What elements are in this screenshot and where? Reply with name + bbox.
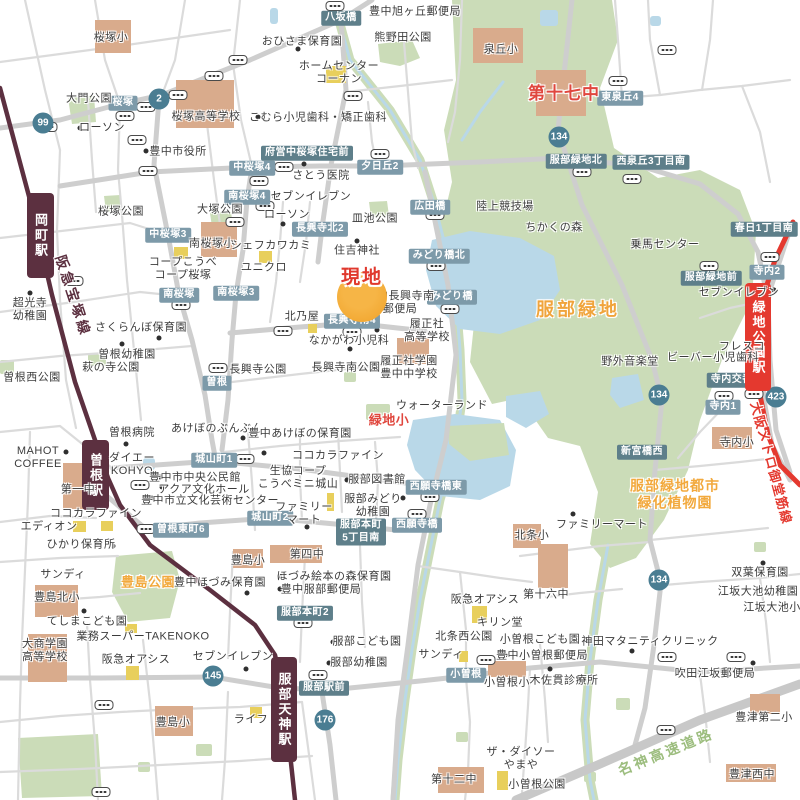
route-number-badge: 145: [203, 666, 224, 687]
map-label: 江坂大池幼稚園: [718, 586, 799, 599]
map-label: 北乃屋: [285, 311, 320, 324]
bus-stop-icon: [623, 174, 642, 184]
bus-stop-icon: [658, 45, 677, 55]
poi-dot: [302, 162, 307, 167]
intersection-badge: みどり橋: [427, 290, 477, 305]
poi-dot: [28, 291, 33, 296]
map-label: ホームセンター コーナン: [299, 60, 379, 86]
bus-stop-icon: [275, 162, 294, 172]
map-label: ココカラファイン: [292, 450, 384, 463]
poi-dot: [548, 667, 553, 672]
map-label: サンディ: [418, 649, 463, 662]
map-label: 服部こども園: [333, 636, 402, 649]
intersection-badge: 服部本町2: [277, 606, 333, 621]
intersection-badge: 中桜塚4: [229, 161, 275, 176]
intersection-badge: 長興寺北2: [292, 222, 348, 237]
map-label: エディオン: [21, 521, 78, 534]
route-number-badge: 134: [649, 385, 670, 406]
map-label: 豊中市役所: [149, 146, 207, 159]
map-label: 小曽根小: [484, 677, 530, 690]
bus-stop-icon: [209, 363, 228, 373]
route-number-badge: 176: [315, 710, 336, 731]
map-label: 履正社 高等学校: [404, 318, 450, 344]
map-label: 豊津西中: [729, 769, 775, 782]
map-label: シェフカワカミ: [231, 240, 312, 253]
map-label: 第十六中: [523, 589, 569, 602]
map-label: おひさま保育園: [262, 36, 343, 49]
map-label: 第十二中: [431, 774, 477, 787]
map-label: ライフ: [234, 714, 269, 727]
map-label: 泉丘小: [484, 44, 519, 57]
map-label: 木佐貫診療所: [530, 675, 599, 688]
map-label: ココカラファイン: [50, 508, 142, 521]
route-number-badge: 134: [649, 570, 670, 591]
site-marker-label: 現地: [341, 267, 383, 289]
bus-stop-icon: [477, 655, 496, 665]
poi-dot: [124, 442, 129, 447]
map-label: 服部みどり 幼稚園: [344, 493, 402, 519]
bus-stop-icon: [658, 652, 677, 662]
map-label: 陸上競技場: [476, 201, 534, 214]
map-label: 小曽根公園: [508, 779, 566, 792]
intersection-badge: 寺内1: [705, 400, 740, 415]
bus-stop-icon: [250, 176, 269, 186]
intersection-badge: 城山町1: [191, 453, 237, 468]
map-label: 桜塚公園: [98, 206, 144, 219]
map-label: 乗馬センター: [631, 239, 700, 252]
map-label: ひかり保育所: [47, 539, 116, 552]
map-label: ローソン: [79, 122, 125, 135]
bus-stop-icon: [205, 71, 224, 81]
hankyu-station-box: 岡町駅: [27, 193, 54, 278]
map-label: 生協コープ こうべミニ城山: [258, 465, 339, 491]
map-label: 神田マタニティクリニック: [581, 636, 718, 649]
poi-dot: [82, 609, 87, 614]
map-label: さとう医院: [292, 170, 350, 183]
map-label: 熊野田公園: [374, 32, 432, 45]
intersection-badge: 服部緑地前: [681, 271, 742, 286]
poi-dot: [761, 561, 766, 566]
intersection-badge: 西願寺橋東: [406, 480, 467, 495]
map-label: 豊中ほづみ保育園: [174, 577, 266, 590]
map-label: 豊島公園: [121, 574, 175, 589]
map-canvas[interactable]: 桜塚中桜塚4南桜塚4中桜塚3夕日丘2長興寺北2広田橋みどり橋北みどり橋長興寺南4…: [0, 0, 800, 800]
map-label: 豊中旭ヶ丘郵便局: [369, 6, 461, 19]
map-label: 服部図書館: [348, 474, 406, 487]
poi-dot: [64, 450, 69, 455]
map-label: 南桜塚小: [189, 238, 235, 251]
map-label: 大阪メトロ御堂筋線: [747, 400, 794, 526]
map-label: MAHOT COFFEE: [14, 445, 62, 471]
hankyu-station-box: 服部天神駅: [271, 657, 297, 762]
map-label: キリン堂: [477, 617, 523, 630]
map-label: 長興寺南公園: [312, 362, 381, 375]
bus-stop-icon: [131, 480, 150, 490]
map-label: 豊島小: [156, 717, 191, 730]
map-label: 服部緑地: [536, 299, 620, 320]
route-number-badge: 134: [549, 127, 570, 148]
map-label: 超光寺 幼稚園: [13, 297, 48, 323]
intersection-badge: 服部緑地北: [546, 154, 607, 169]
bus-stop-icon: [274, 326, 293, 336]
map-label: 服部幼稚園: [330, 657, 388, 670]
intersection-badge: 広田橋: [410, 200, 450, 215]
route-number-badge: 2: [149, 89, 170, 110]
poi-dot: [262, 451, 267, 456]
bus-stop-icon: [92, 787, 111, 797]
map-label: 第十七中: [528, 84, 600, 104]
intersection-badge: 南桜塚4: [224, 190, 270, 205]
intersection-badge: みどり橋北: [409, 249, 470, 264]
intersection-badge: 西泉丘3丁目南: [612, 155, 689, 170]
map-label: 長興寺公園: [229, 364, 287, 377]
map-label: 住吉神社: [334, 245, 380, 258]
map-label: ウォーターランド: [396, 400, 488, 413]
map-label: 曽根西公園: [3, 372, 61, 385]
poi-dot: [375, 328, 380, 333]
map-label: 北条小: [515, 530, 550, 543]
map-label: こむら小児歯科・矯正歯科: [249, 112, 387, 125]
map-label: セブンイレブン: [271, 191, 352, 204]
map-label: 桜塚小: [94, 32, 129, 45]
intersection-badge: 曽根東町6: [153, 523, 209, 538]
intersection-badge: 夕日丘2: [357, 160, 403, 175]
intersection-badge: 府営中桜塚住宅前: [261, 146, 353, 161]
map-label: サンディ: [40, 569, 85, 582]
bus-stop-icon: [95, 700, 114, 710]
map-label: ファミリーマート: [556, 519, 648, 532]
bus-stop-icon: [727, 652, 746, 662]
poi-dot: [751, 661, 756, 666]
map-label: なかがわ小児科: [309, 335, 390, 348]
intersection-badge: 東泉丘4: [597, 91, 643, 106]
map-label: 北条西公園: [435, 631, 493, 644]
intersection-badge: 服部本町 5丁目南: [336, 519, 386, 546]
poi-dot: [630, 649, 635, 654]
map-overlay-layer: 桜塚中桜塚4南桜塚4中桜塚3夕日丘2長興寺北2広田橋みどり橋北みどり橋長興寺南4…: [0, 0, 800, 800]
bus-stop-icon: [700, 261, 719, 271]
map-label: 豊中市立文化芸術センター: [141, 495, 279, 508]
intersection-badge: 寺内2: [749, 265, 784, 280]
map-label: 皿池公園: [352, 213, 398, 226]
map-label: 豊島小: [231, 555, 266, 568]
map-label: 豊中あけぼの保育園: [248, 428, 352, 441]
intersection-badge: 新宮橋西: [617, 445, 667, 460]
map-label: 第一中: [61, 484, 96, 497]
bus-stop-icon: [657, 725, 676, 735]
intersection-badge: 南桜塚: [159, 288, 199, 303]
poi-dot: [144, 149, 149, 154]
map-label: ファミリー マート: [275, 501, 333, 527]
bus-stop-icon: [309, 670, 328, 680]
poi-dot: [571, 512, 576, 517]
bus-stop-icon: [441, 304, 460, 314]
map-label: 曽根幼稚園: [98, 349, 156, 362]
intersection-badge: 中桜塚3: [145, 228, 191, 243]
map-label: 阪急オアシス: [102, 654, 171, 667]
map-label: 小曽根こども園: [500, 634, 581, 647]
route-number-badge: 99: [33, 113, 54, 134]
poi-dot: [241, 436, 246, 441]
map-label: 大塚公園: [197, 204, 243, 217]
intersection-badge: 南桜塚3: [213, 286, 259, 301]
map-label: ビーバー小児歯科: [667, 352, 759, 365]
map-label: 阪急オアシス: [451, 594, 520, 607]
map-label: 江坂大池小: [743, 602, 800, 615]
intersection-badge: 小曽根: [446, 668, 486, 683]
map-label: ザ・ダイソー やまや: [487, 746, 556, 772]
poi-dot: [245, 591, 250, 596]
map-label: ローソン: [264, 209, 310, 222]
map-label: 吹田江坂郵便局: [675, 668, 756, 681]
poi-dot: [120, 342, 125, 347]
map-label: 桜塚高等学校: [172, 111, 241, 124]
map-label: セブンイレブン: [699, 287, 780, 300]
intersection-badge: 服部駅前: [299, 681, 349, 696]
map-label: 緑地小: [369, 412, 410, 427]
bus-stop-icon: [116, 111, 135, 121]
map-label: ほづみ絵本の森保育園: [277, 571, 392, 584]
intersection-badge: 曽根: [203, 376, 232, 391]
poi-dot: [355, 239, 360, 244]
map-label: てしまこども園: [47, 616, 128, 629]
map-label: 豊島北小: [34, 592, 80, 605]
map-label: 豊中小曽根郵便局: [496, 650, 588, 663]
intersection-badge: 八坂橋: [321, 11, 361, 26]
hankyu-station-box: 曽根駅: [82, 440, 109, 510]
poi-dot: [157, 336, 162, 341]
map-label: コープこうべ コープ桜塚: [149, 256, 217, 282]
bus-stop-icon: [761, 252, 780, 262]
map-label: 野外音楽堂: [601, 356, 659, 369]
map-label: セブンイレブン: [193, 651, 274, 664]
poi-dot: [281, 222, 286, 227]
map-label: 業務スーパーTAKENOKO: [76, 631, 209, 644]
poi-dot: [244, 667, 249, 672]
map-label: 豊中服部郵便局: [281, 584, 362, 597]
map-label: 阪急宝塚線: [52, 253, 94, 339]
map-label: 曽根病院: [109, 427, 155, 440]
bus-stop-icon: [229, 55, 248, 65]
map-label: 双葉保育園: [731, 567, 789, 580]
bus-stop-icon: [371, 149, 390, 159]
map-label: ユニクロ: [241, 262, 287, 275]
bus-stop-icon: [226, 217, 245, 227]
map-label: 大商学園 高等学校: [22, 638, 68, 664]
map-label: ちかくの森: [525, 222, 583, 235]
map-label: 服部緑地都市 緑化植物園: [630, 477, 720, 510]
bus-stop-icon: [139, 166, 158, 176]
bus-stop-icon: [169, 90, 188, 100]
bus-stop-icon: [573, 167, 592, 177]
bus-stop-icon: [128, 135, 147, 145]
intersection-badge: 桜塚: [109, 96, 138, 111]
intersection-badge: 西願寺橋: [392, 518, 442, 533]
bus-stop-icon: [236, 454, 255, 464]
intersection-badge: 春日1丁目南: [731, 222, 798, 237]
map-label: さくらんぼ保育園: [95, 322, 187, 335]
map-label: 萩の寺公園: [82, 362, 140, 375]
map-label: 豊津第二小: [735, 712, 793, 725]
bus-stop-icon: [344, 91, 363, 101]
map-label: 大門公園: [66, 93, 112, 106]
map-label: 第四中: [290, 549, 325, 562]
map-label: 履正社学園 豊中中学校: [380, 355, 438, 381]
map-label: 寺内小: [720, 437, 755, 450]
bus-stop-icon: [609, 76, 628, 86]
bus-stop-icon: [326, 1, 345, 11]
